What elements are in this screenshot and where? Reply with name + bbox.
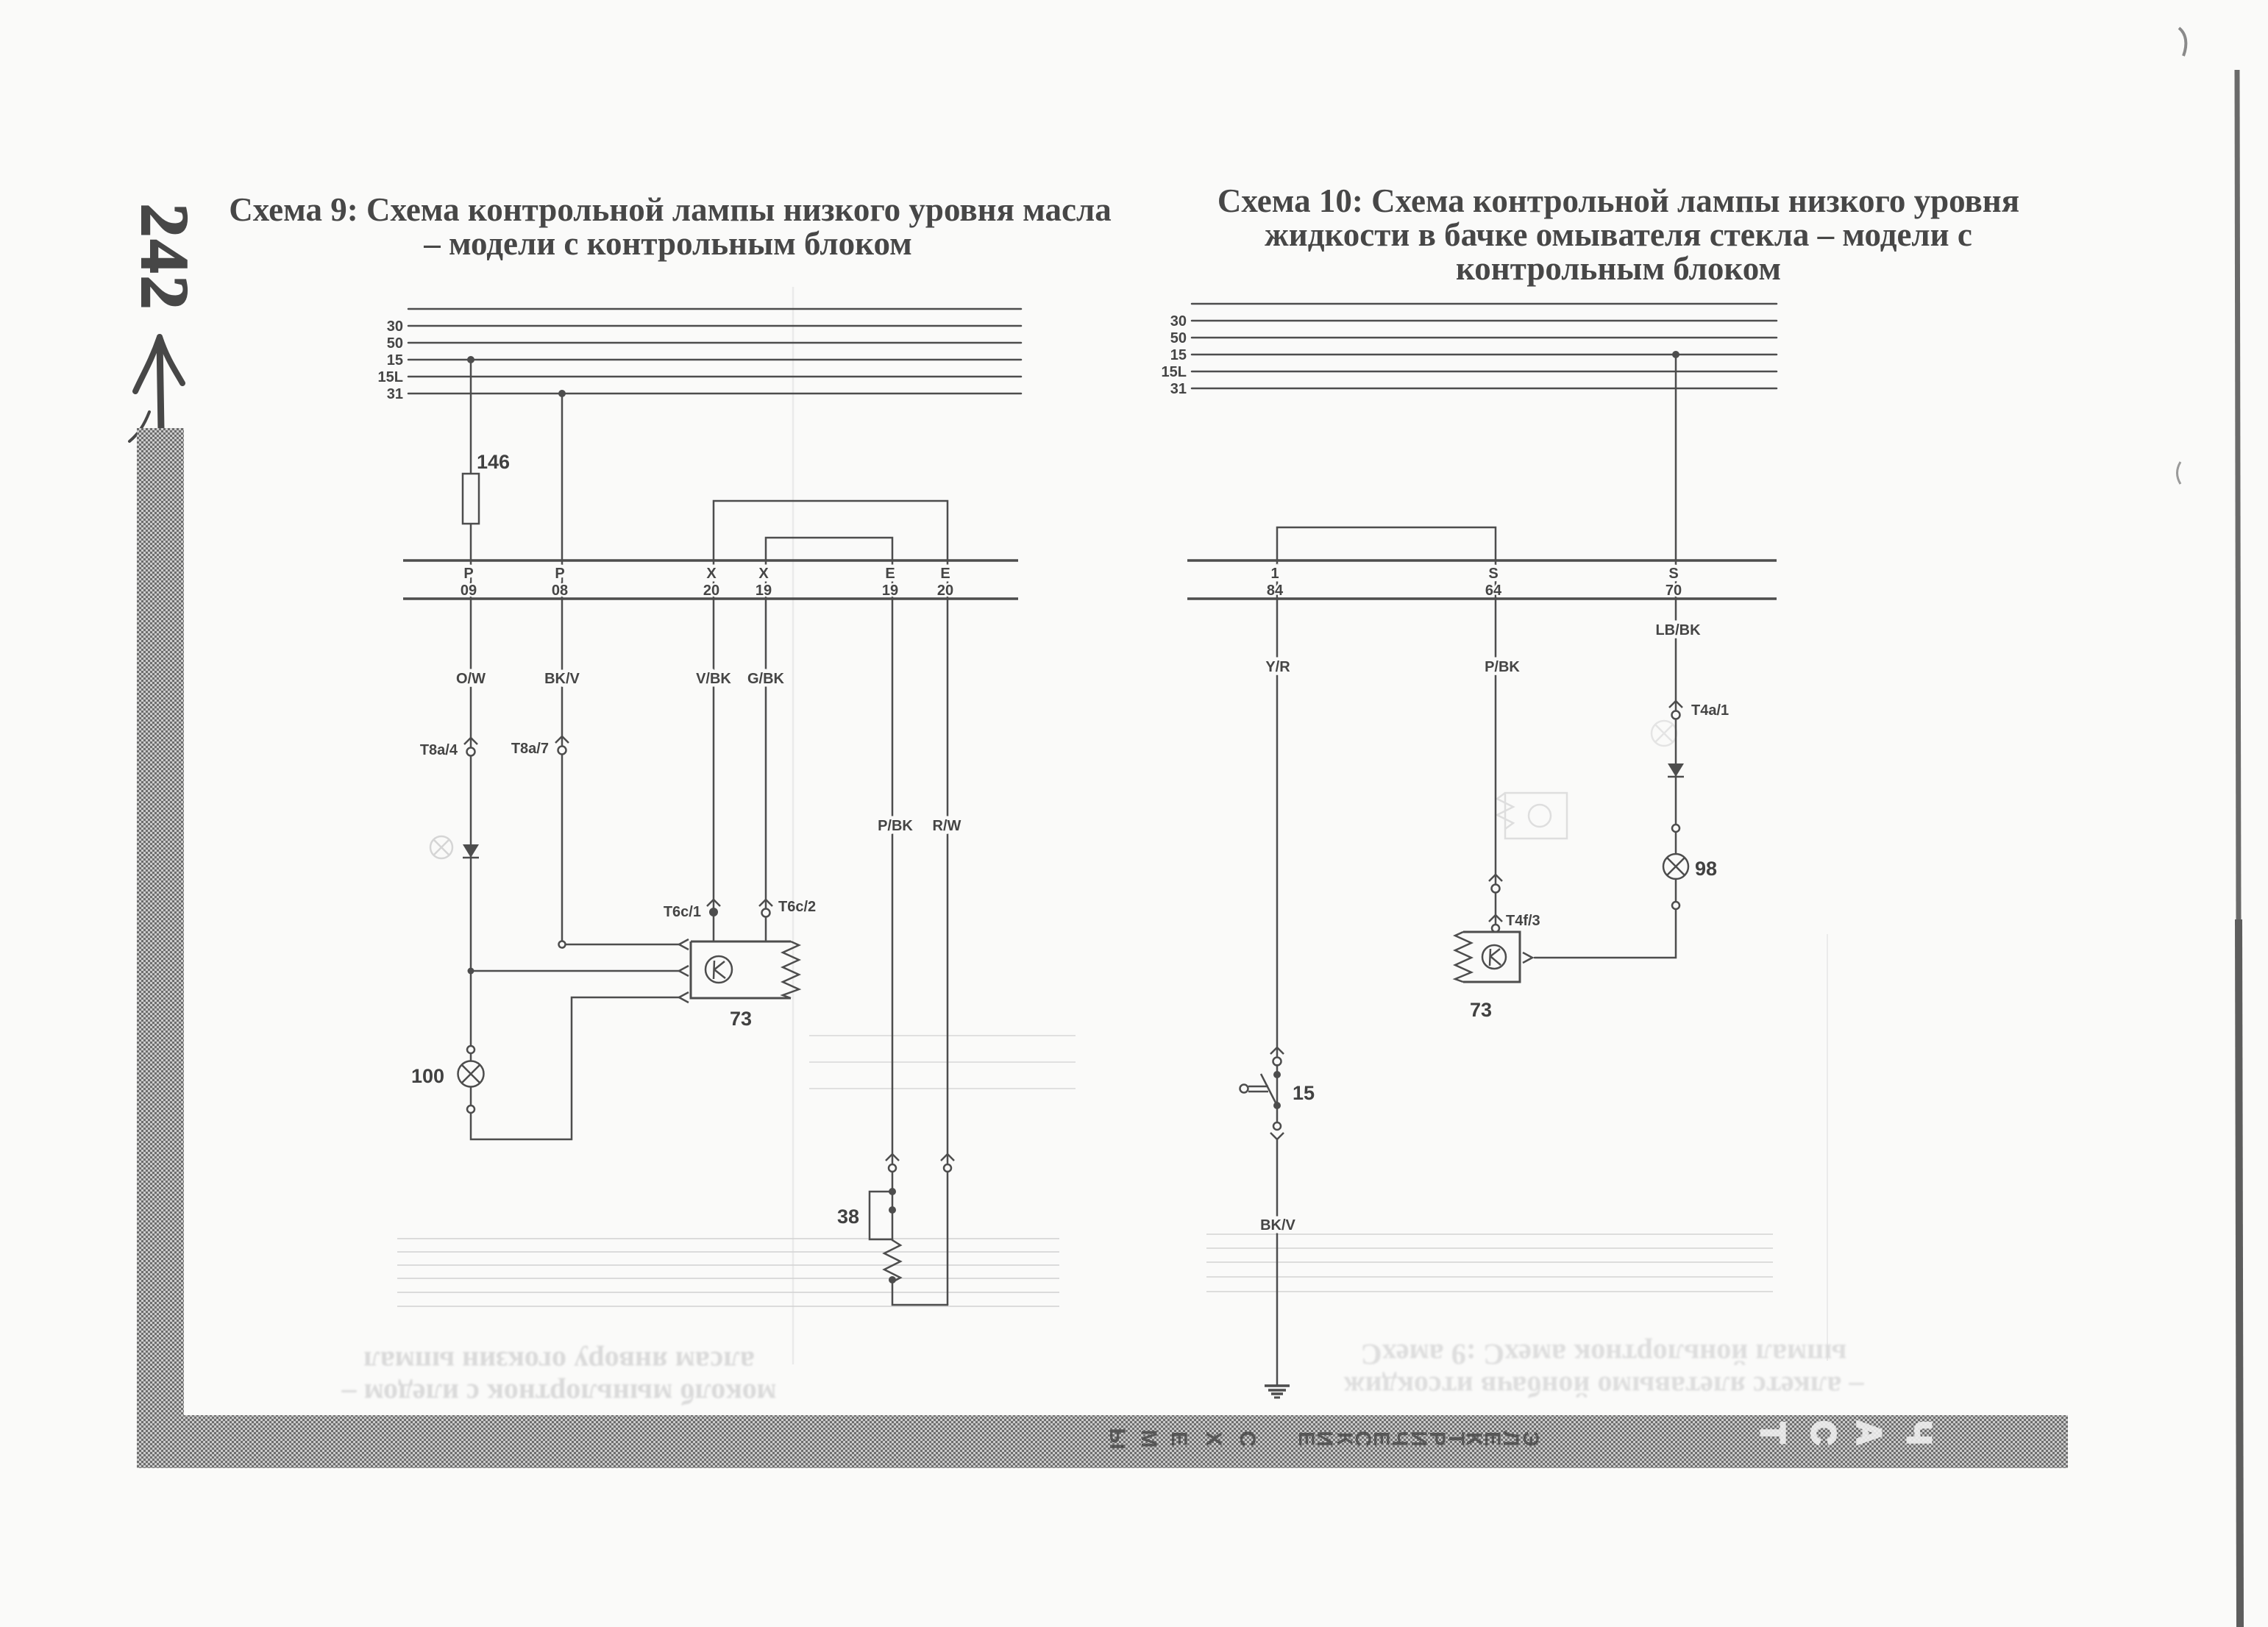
svg-text:70: 70: [1666, 583, 1682, 599]
svg-text:T8a/4: T8a/4: [420, 742, 458, 758]
svg-text:Схема 9: Схема контрольной лам: Схема 9: Схема контрольной лампы низкого…: [229, 191, 1111, 228]
svg-text:– алкетс ялетавымо йонбачв итс: – алкетс ялетавымо йонбачв итсокдиж: [1344, 1370, 1865, 1403]
svg-text:146: 146: [477, 451, 510, 473]
svg-text:Y/R: Y/R: [1265, 659, 1290, 675]
svg-text:30: 30: [1170, 313, 1187, 330]
svg-text:1: 1: [1270, 566, 1279, 582]
svg-text:V/BK: V/BK: [696, 671, 731, 687]
svg-text:50: 50: [1170, 330, 1187, 346]
svg-text:М: М: [1137, 1430, 1161, 1448]
svg-text:BK/V: BK/V: [1260, 1217, 1295, 1233]
svg-text:73: 73: [730, 1008, 752, 1030]
svg-text:Ч: Ч: [1900, 1421, 1938, 1445]
svg-text:19: 19: [882, 583, 898, 599]
svg-text:S: S: [1668, 566, 1678, 582]
svg-text:Э: Э: [1518, 1431, 1543, 1446]
svg-text:ыпмал йоньлортнок амехС :9 аме: ыпмал йоньлортнок амехС :9 амехС: [1361, 1338, 1847, 1371]
svg-text:15L: 15L: [1162, 364, 1187, 380]
svg-text:15L: 15L: [378, 369, 403, 385]
svg-text:S: S: [1488, 566, 1498, 582]
svg-text:P: P: [555, 566, 564, 582]
svg-text:09: 09: [461, 583, 477, 599]
svg-text:15: 15: [1170, 347, 1187, 363]
svg-text:84: 84: [1267, 583, 1284, 599]
svg-text:19: 19: [756, 583, 772, 599]
svg-text:С: С: [1805, 1420, 1843, 1445]
svg-text:T6c/1: T6c/1: [664, 904, 701, 920]
svg-text:Х: Х: [1201, 1431, 1226, 1446]
svg-text:X: X: [758, 566, 769, 582]
svg-text:E: E: [940, 566, 950, 582]
svg-text:P/BK: P/BK: [878, 818, 913, 834]
svg-text:08: 08: [552, 583, 568, 599]
svg-text:P/BK: P/BK: [1485, 659, 1520, 675]
svg-text:31: 31: [1170, 381, 1187, 397]
svg-text:100: 100: [411, 1065, 444, 1087]
svg-text:алсам янвору огокзин ыпмал: алсам янвору огокзин ыпмал: [363, 1345, 755, 1378]
svg-text:64: 64: [1485, 583, 1502, 599]
svg-text:жидкости в бачке омывателя сте: жидкости в бачке омывателя стекла – моде…: [1265, 216, 1972, 253]
svg-text:Т: Т: [1754, 1423, 1792, 1443]
svg-text:С: С: [1235, 1431, 1259, 1447]
svg-text:20: 20: [703, 583, 719, 599]
svg-text:моколб мыньлортнок с иледом –: моколб мыньлортнок с иледом –: [341, 1378, 777, 1411]
svg-text:Ы: Ы: [1105, 1428, 1129, 1449]
svg-text:Е: Е: [1167, 1431, 1191, 1446]
svg-text:73: 73: [1470, 999, 1492, 1021]
svg-text:38: 38: [837, 1206, 859, 1228]
svg-text:А: А: [1850, 1420, 1888, 1445]
svg-text:T4f/3: T4f/3: [1506, 913, 1540, 929]
svg-text:E: E: [885, 566, 895, 582]
svg-text:BK/V: BK/V: [544, 671, 580, 687]
svg-text:G/BK: G/BK: [747, 671, 785, 687]
svg-text:– модели с контрольным блоком: – модели с контрольным блоком: [423, 225, 912, 262]
svg-text:20: 20: [937, 583, 953, 599]
svg-text:31: 31: [387, 386, 403, 402]
svg-text:242: 242: [127, 204, 202, 312]
svg-text:98: 98: [1695, 858, 1717, 880]
svg-text:50: 50: [387, 335, 403, 352]
svg-text:15: 15: [1293, 1082, 1315, 1104]
svg-text:T6c/2: T6c/2: [778, 899, 816, 915]
svg-text:LB/BK: LB/BK: [1655, 622, 1701, 638]
svg-text:R/W: R/W: [933, 818, 961, 834]
svg-text:15: 15: [387, 352, 403, 369]
svg-text:контрольным блоком: контрольным блоком: [1456, 250, 1781, 287]
svg-text:O/W: O/W: [456, 671, 486, 687]
svg-text:P: P: [463, 566, 473, 582]
svg-text:T4a/1: T4a/1: [1691, 702, 1729, 719]
svg-text:30: 30: [387, 318, 403, 335]
svg-text:Схема 10: Схема контрольной ла: Схема 10: Схема контрольной лампы низког…: [1217, 182, 2019, 219]
svg-text:T8a/7: T8a/7: [511, 741, 549, 757]
svg-text:X: X: [706, 566, 717, 582]
